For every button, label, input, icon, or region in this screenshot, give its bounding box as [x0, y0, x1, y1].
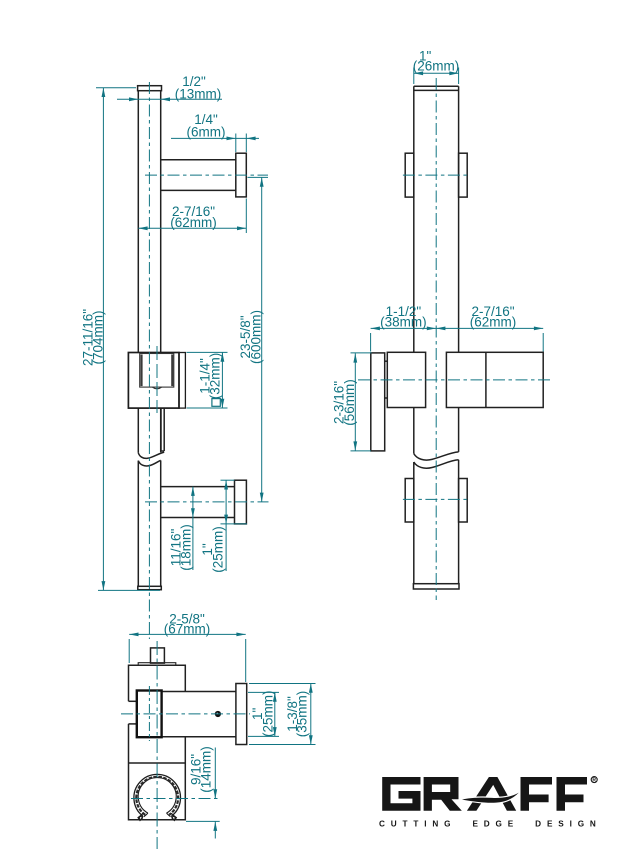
svg-text:(704mm): (704mm)	[91, 310, 106, 364]
svg-text:(13mm): (13mm)	[175, 87, 222, 102]
svg-text:(67mm): (67mm)	[164, 621, 211, 636]
svg-text:(32mm): (32mm)	[207, 353, 222, 400]
svg-text:R: R	[592, 778, 596, 784]
svg-text:(25mm): (25mm)	[211, 526, 226, 573]
svg-text:(35mm): (35mm)	[295, 691, 310, 738]
svg-text:(6mm): (6mm)	[187, 124, 226, 139]
svg-text:(56mm): (56mm)	[342, 379, 357, 426]
svg-text:(62mm): (62mm)	[170, 215, 217, 230]
svg-text:CUTTING EDGE DESIGN: CUTTING EDGE DESIGN	[379, 820, 602, 829]
svg-text:(62mm): (62mm)	[470, 315, 517, 330]
svg-text:(25mm): (25mm)	[261, 691, 276, 738]
svg-text:(600mm): (600mm)	[248, 310, 263, 364]
svg-text:(26mm): (26mm)	[413, 59, 460, 74]
svg-text:(14mm): (14mm)	[199, 746, 214, 793]
svg-text:(38mm): (38mm)	[380, 315, 427, 330]
svg-text:(18mm): (18mm)	[178, 524, 193, 571]
